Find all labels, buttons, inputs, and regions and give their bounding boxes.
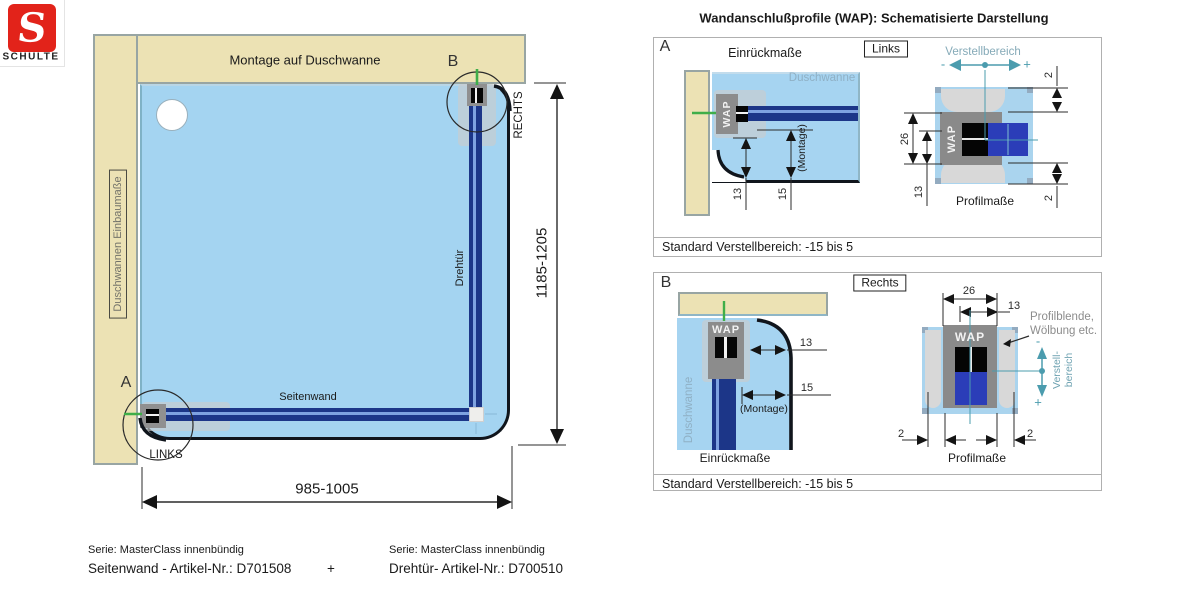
panel-a-dim26: 26	[899, 133, 911, 145]
pa-profile-core-blue	[988, 123, 1028, 156]
door-label: Drehtür	[454, 250, 466, 287]
panel-a-duschwanne-label: Duschwanne	[789, 72, 855, 84]
pa-wall	[684, 70, 710, 216]
panel-a-dim13-left: 13	[732, 188, 744, 200]
corner-connector	[469, 407, 484, 422]
panel-a-side-tag: Links	[864, 41, 908, 58]
rechts-label: RECHTS	[513, 91, 525, 138]
panel-b-verstellbereich-label: Verstell- bereich	[1051, 351, 1075, 389]
footer-right-article: Drehtür- Artikel-Nr.: D700510	[389, 561, 563, 576]
panel-b-profilblende-line1: Profilblende,	[1030, 311, 1094, 323]
panel-a-einrueckmasse-label: Einrückmaße	[728, 46, 802, 60]
panel-b-profilmasse-label: Profilmaße	[948, 451, 1006, 465]
left-wall-label: Duschwannen Einbaumaße	[109, 169, 127, 318]
height-dimension-label: 1185-1205	[534, 228, 551, 299]
panel-b-einrueckmasse-label: Einrückmaße	[700, 451, 771, 465]
panel-b-minus: -	[1036, 334, 1040, 349]
drain-circle	[156, 99, 188, 131]
panel-b-dim13-left: 13	[800, 337, 812, 349]
main-width-dimension	[142, 446, 512, 509]
panel-b-dim2-left: 2	[898, 428, 904, 440]
door-glass-strip	[469, 100, 482, 408]
footer-left-article: Seitenwand - Artikel-Nr.: D701508	[88, 561, 291, 576]
panel-a-dim2-top: 2	[1043, 72, 1055, 78]
pa-glass-strip	[740, 106, 858, 121]
pa-profile-core-black	[962, 123, 988, 156]
panel-b-dim26: 26	[963, 285, 975, 297]
top-wall-label: Montage auf Duschwanne	[229, 53, 380, 68]
panel-a-letter: A	[660, 38, 671, 56]
panel-b-standard-note: Standard Verstellbereich: -15 bis 5	[662, 477, 853, 491]
panel-a-verstellbereich-label: Verstellbereich	[945, 46, 1020, 58]
panel-b-dim15-left: 15	[801, 382, 813, 394]
panel-b-wap-left-label: WAP	[712, 324, 740, 336]
panel-b-wap-right-label: WAP	[955, 330, 985, 344]
panel-a-dim13-right: 13	[913, 186, 925, 198]
pb-blende-left	[925, 330, 941, 408]
logo-brand-text: SCHULTE	[3, 52, 60, 63]
panel-a-montage-label: (Montage)	[796, 124, 808, 172]
panel-a-wap-left-label: WAP	[721, 101, 733, 128]
wap-section-title: Wandanschlußprofile (WAP): Schematisiert…	[699, 11, 1048, 26]
footer-plus: +	[327, 561, 335, 576]
verstell-line2: bereich	[1063, 351, 1075, 389]
panel-b-montage-label: (Montage)	[740, 403, 788, 415]
panel-a-plus: +	[1023, 57, 1031, 72]
wap-fitting-b-core	[471, 88, 483, 103]
panel-b-dim13-right: 13	[1008, 300, 1020, 312]
links-label: LINKS	[149, 449, 182, 461]
panel-a-dim15-left: 15	[777, 188, 789, 200]
panel-a-profilmasse-label: Profilmaße	[956, 194, 1014, 208]
pa-corner-sq4	[1027, 178, 1033, 184]
schulte-logo: S SCHULTE	[0, 0, 65, 67]
pa-corner-sq3	[1027, 87, 1033, 93]
panel-b-duschwanne-label: Duschwanne	[683, 377, 695, 443]
pb-corner-sq2	[922, 408, 928, 414]
pb-corner-sq4	[1012, 408, 1018, 414]
panel-b-side-tag: Rechts	[853, 275, 906, 292]
panel-a-dim2-bottom: 2	[1043, 195, 1055, 201]
verstell-line1: Verstell-	[1051, 351, 1063, 389]
wap-fitting-a-core	[146, 409, 159, 423]
sidewall-glass-strip	[160, 408, 470, 421]
pb-wap-core	[715, 337, 737, 358]
panel-b-dim2-right: 2	[1027, 428, 1033, 440]
pa-blende-top	[941, 89, 1005, 112]
panel-b-plus: +	[1034, 395, 1042, 410]
side-wall-label: Seitenwand	[279, 391, 337, 403]
pa-wap-core	[736, 106, 748, 122]
panel-a-wap-right-label: WAP	[946, 125, 958, 153]
footer-right-serie: Serie: MasterClass innenbündig	[389, 544, 545, 556]
schulte-installation-diagram: S SCHULTE	[0, 0, 1196, 600]
panel-b-letter: B	[661, 274, 672, 292]
panel-a-standard-note: Standard Verstellbereich: -15 bis 5	[662, 240, 853, 254]
panel-a-minus: -	[941, 57, 945, 72]
pb-profile-core-blue	[955, 372, 987, 405]
point-a-label: A	[121, 374, 132, 392]
point-b-label: B	[448, 53, 459, 71]
pb-wall	[678, 292, 828, 316]
pb-profile-core-black	[955, 347, 987, 372]
logo-s-icon: S	[15, 5, 49, 52]
pb-blende-right	[999, 330, 1015, 408]
width-dimension-label: 985-1005	[295, 481, 358, 498]
footer-left-serie: Serie: MasterClass innenbündig	[88, 544, 244, 556]
